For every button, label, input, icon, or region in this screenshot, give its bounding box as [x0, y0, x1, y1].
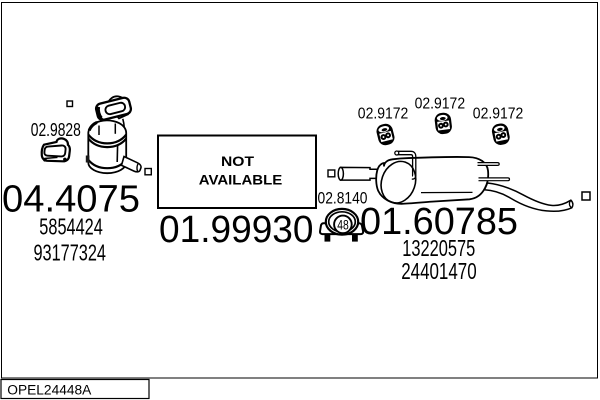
svg-text:5854424: 5854424 [39, 214, 103, 240]
svg-text:48: 48 [337, 216, 349, 232]
svg-text:02.9172: 02.9172 [358, 106, 409, 123]
svg-text:AVAILABLE: AVAILABLE [199, 171, 283, 187]
svg-text:02.9172: 02.9172 [473, 106, 524, 123]
svg-text:02.9172: 02.9172 [415, 95, 466, 112]
svg-text:93177324: 93177324 [34, 240, 107, 266]
svg-text:24401470: 24401470 [401, 258, 477, 284]
svg-text:OPEL24448A: OPEL24448A [7, 383, 91, 398]
svg-text:02.9828: 02.9828 [31, 120, 81, 140]
svg-text:01.99930: 01.99930 [159, 209, 314, 251]
svg-text:NOT: NOT [221, 153, 254, 169]
